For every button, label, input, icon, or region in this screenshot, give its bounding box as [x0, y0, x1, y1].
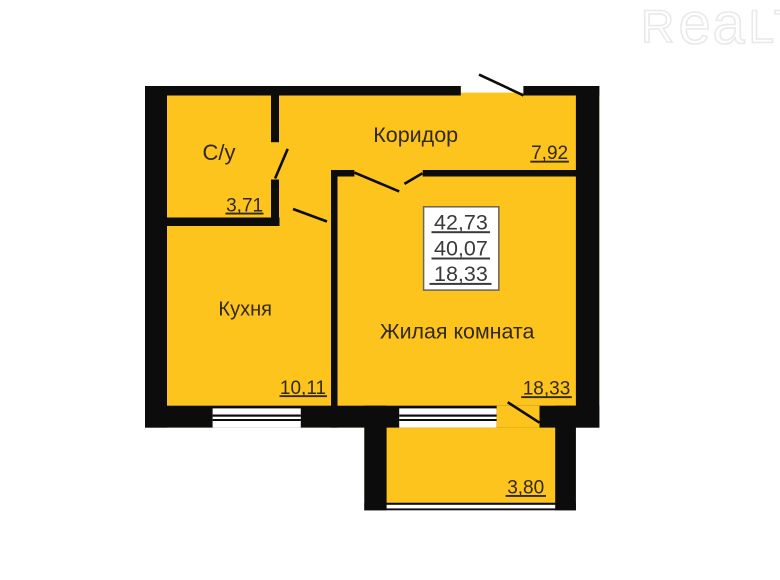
svg-text:a: a: [713, 0, 746, 57]
svg-text:40,07: 40,07: [434, 237, 488, 261]
svg-text:Жилая комната: Жилая комната: [380, 319, 535, 343]
svg-text:R: R: [641, 1, 674, 53]
svg-text:18,33: 18,33: [434, 262, 488, 286]
svg-text:L: L: [749, 1, 775, 53]
svg-text:42,73: 42,73: [434, 210, 488, 234]
svg-text:e: e: [679, 0, 711, 57]
svg-text:С/у: С/у: [203, 140, 236, 165]
svg-text:Кухня: Кухня: [218, 298, 272, 320]
svg-text:Коридор: Коридор: [373, 123, 458, 147]
svg-text:T: T: [774, 1, 780, 53]
